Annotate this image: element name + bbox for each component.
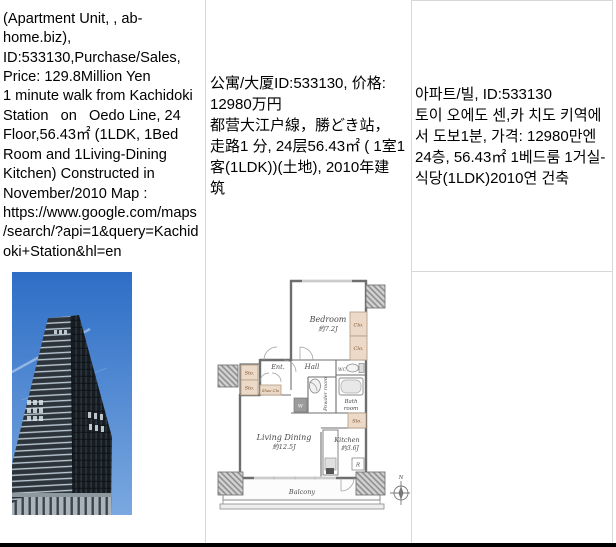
label-north: N: [398, 475, 404, 481]
label-living-dining: Living Dining: [256, 433, 312, 442]
label-fridge: R: [355, 463, 360, 469]
label-shoe-closet: Shoe Clo: [262, 388, 280, 393]
image-row: Bedroom 約7.2J Clo. Clo. Hall Ent. WC Pow…: [0, 272, 616, 543]
cell-empty: [412, 272, 613, 543]
label-closet-2: Clo.: [354, 346, 364, 352]
label-powder-room: Powder room: [323, 377, 329, 412]
cell-building-photo: [0, 272, 206, 543]
label-bedroom-size: 約7.2J: [318, 325, 338, 333]
listing-description-en: (Apartment Unit, , ab- home.biz), ID:533…: [0, 10, 199, 262]
label-closet-1: Clo.: [354, 323, 364, 329]
cell-description-zh: 公寓/大厦ID:533130, 价格: 12980万円 都营大江户線，勝どき站，…: [206, 0, 412, 272]
building-photo: [12, 272, 132, 515]
label-balcony: Balcony: [288, 488, 315, 496]
listing-page: (Apartment Unit, , ab- home.biz), ID:533…: [0, 0, 616, 547]
label-storage-2: Sto.: [245, 386, 255, 392]
cell-description-en: (Apartment Unit, , ab- home.biz), ID:533…: [0, 0, 206, 272]
label-hall: Hall: [304, 363, 320, 371]
floorplan-image: Bedroom 約7.2J Clo. Clo. Hall Ent. WC Pow…: [214, 272, 410, 522]
label-kitchen: Kitchen: [333, 436, 359, 444]
cell-floorplan: Bedroom 約7.2J Clo. Clo. Hall Ent. WC Pow…: [206, 272, 412, 543]
text-row: (Apartment Unit, , ab- home.biz), ID:533…: [0, 0, 616, 272]
label-bath-1: Bath: [343, 399, 358, 405]
listing-description-ko: 아파트/빌, ID:533130 토이 오에도 센,카 치도 키역에 서 도보1…: [412, 84, 605, 189]
label-kitchen-size: 約3.6J: [341, 444, 360, 452]
cell-description-ko: 아파트/빌, ID:533130 토이 오에도 센,카 치도 키역에 서 도보1…: [412, 0, 613, 272]
listing-description-zh: 公寓/大厦ID:533130, 价格: 12980万円 都营大江户線，勝どき站，…: [206, 73, 405, 199]
north-compass-icon: [390, 481, 410, 505]
label-bedroom: Bedroom: [309, 315, 347, 324]
label-storage-1: Sto.: [245, 371, 255, 377]
label-bath-2: room: [344, 406, 358, 412]
bottom-border: [0, 543, 616, 547]
label-washer: W: [298, 404, 304, 410]
label-storage-3: Sto.: [352, 419, 362, 425]
label-entrance: Ent.: [270, 363, 285, 371]
label-wc: WC: [338, 367, 347, 373]
label-living-size: 約12.5J: [272, 443, 296, 451]
